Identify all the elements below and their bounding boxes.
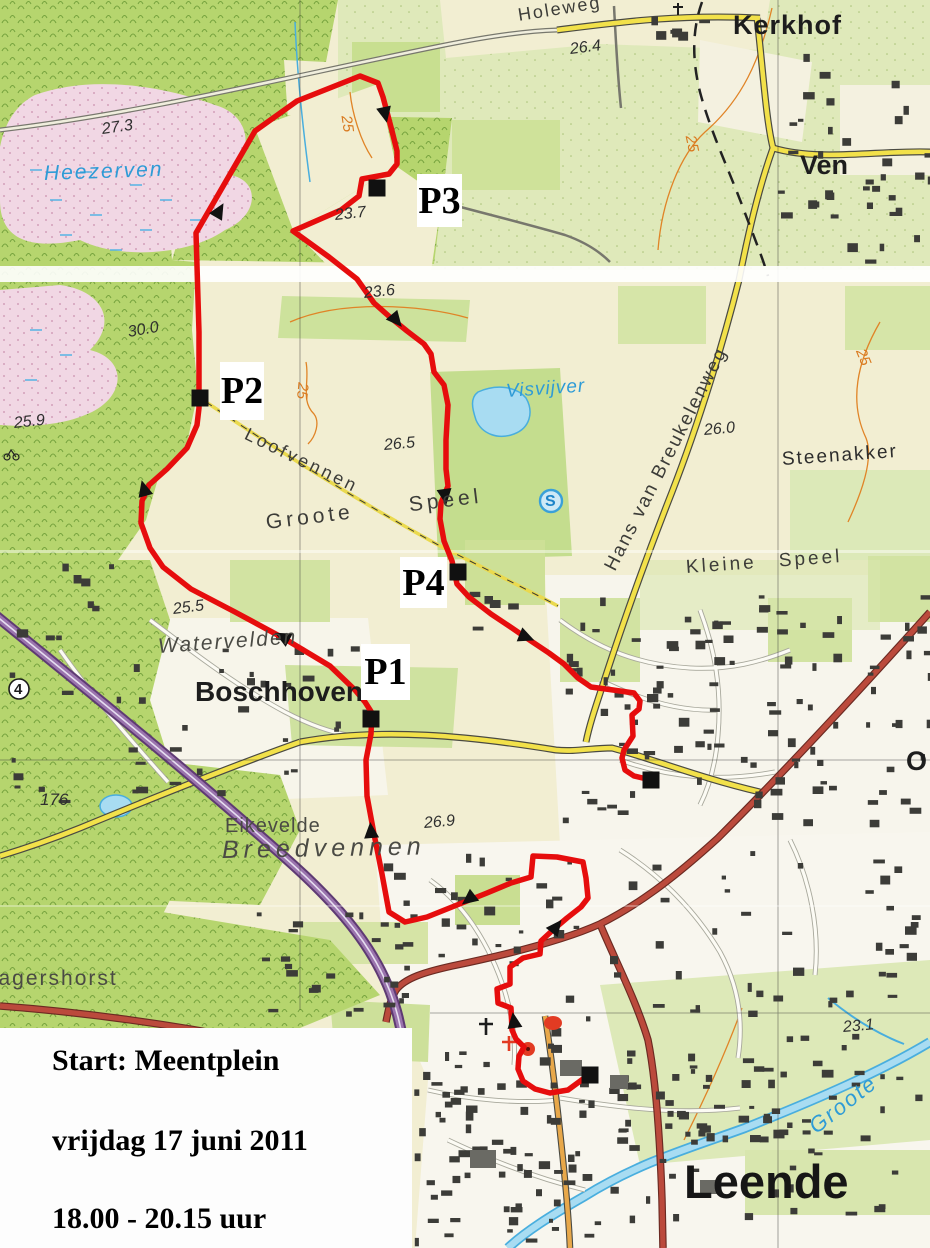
map-label-ven: Ven [800, 152, 848, 179]
elevation-label: 176 [40, 791, 68, 808]
elevation-label: 23.6 [363, 283, 396, 302]
elevation-label: 26.9 [423, 813, 455, 832]
map-label-leende: Leende [684, 1158, 849, 1205]
contour-label: 25 [294, 382, 310, 400]
topographic-map: Holeweg Kerkhof 26.4 Ven 25 25 25 25 Hee… [0, 0, 930, 1248]
map-label-oostrik-partial: O [906, 748, 927, 775]
map-label-heezerven: Heezerven [44, 159, 164, 184]
checkpoint-text: P3 [418, 179, 460, 223]
control-square-p1 [363, 711, 380, 728]
map-label-kerkhof: Kerkhof [733, 12, 842, 39]
checkpoint-label-p2: P2 [220, 362, 264, 420]
control-square-p3 [369, 180, 386, 197]
contour-label: 25 [339, 114, 356, 133]
map-label-boschhoven: Boschhoven [195, 678, 363, 706]
start-line-date: vrijdag 17 juni 2011 [52, 1124, 308, 1158]
checkpoint-label-p1: P1 [361, 644, 410, 700]
road-number-text: 4 [14, 681, 22, 698]
start-line-location: Start: Meentplein [52, 1044, 279, 1078]
elevation-label: 26.0 [703, 420, 735, 439]
church-icon [544, 1016, 562, 1030]
checkpoint-text: P2 [221, 369, 263, 413]
s-circle-text: S [545, 493, 556, 511]
elevation-label: 23.1 [842, 1017, 874, 1036]
checkpoint-label-p3: P3 [417, 174, 462, 227]
map-label-jagershorst: Jagershorst [0, 968, 118, 989]
map-label-eikevelde: Eikevelde [225, 816, 321, 836]
control-square-p2 [192, 390, 209, 407]
control-square-p4 [450, 564, 467, 581]
checkpoint-text: P4 [402, 561, 444, 605]
start-line-time: 18.00 - 20.15 uur [52, 1202, 266, 1236]
elevation-label: 23.7 [334, 205, 367, 224]
control-square-start [582, 1067, 599, 1084]
control-square-finish [643, 772, 660, 789]
map-label-breedvennen: Breedvennen [222, 834, 426, 863]
elevation-label: 25.9 [13, 413, 46, 432]
checkpoint-text: P1 [364, 650, 406, 694]
elevation-label: 26.5 [383, 435, 415, 454]
contour-label: 25 [683, 134, 701, 153]
start-info-box: Start: Meentplein vrijdag 17 juni 2011 1… [0, 1028, 412, 1248]
checkpoint-label-p4: P4 [400, 557, 447, 608]
